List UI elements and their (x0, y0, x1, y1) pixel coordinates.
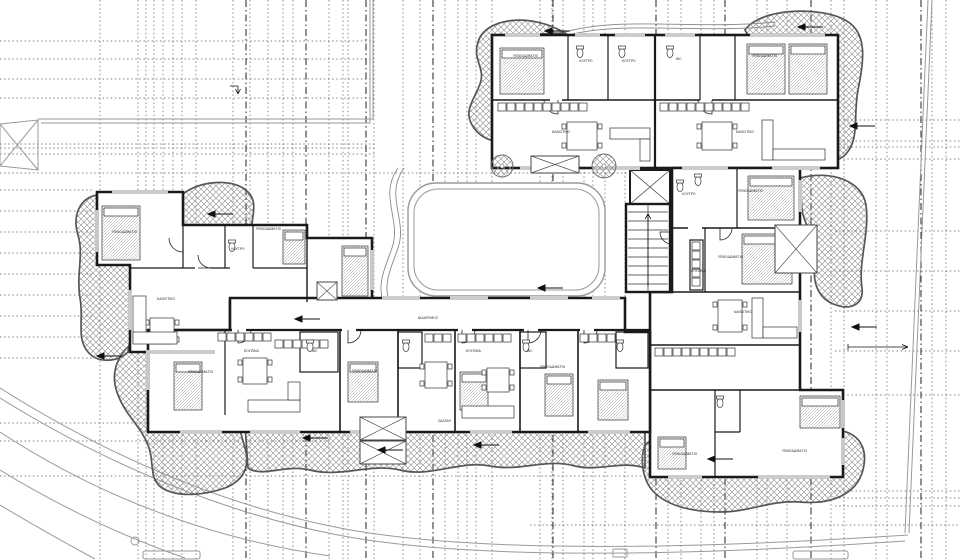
kitchen-counter (516, 103, 524, 111)
kitchen-counter (284, 340, 292, 348)
kitchen-counter (700, 348, 708, 356)
kitchen-counter (714, 103, 722, 111)
chair (598, 143, 602, 148)
floor-plan-canvas: ΥΠΝΟΔΩΜΑΤΙΟΥΠΝΟΔΩΜΑΤΙΟΥΠΝΟΔΩΜΑΤΙΟΥΠΝΟΔΩΜ… (0, 0, 960, 560)
room-label: ΚΟΥΖΙΝΑ (691, 269, 707, 273)
chair (562, 124, 566, 129)
toilet-tank (229, 240, 236, 243)
kitchen-counter (507, 103, 515, 111)
room-label: WC (527, 349, 533, 353)
room-label: ΚΟΥΖΙΝΑ (244, 349, 260, 353)
site-boundary-right-inner (905, 0, 928, 533)
kitchen-counter (709, 348, 717, 356)
chair (743, 325, 747, 330)
chair (697, 124, 701, 129)
kitchen-counter (570, 103, 578, 111)
chair (238, 377, 242, 382)
kitchen-counter (732, 103, 740, 111)
kitchen-counter (425, 334, 433, 342)
tree-trunk (500, 164, 504, 168)
chair (510, 385, 514, 390)
chair (562, 143, 566, 148)
toilet-tank (403, 340, 410, 343)
chair (482, 370, 486, 375)
room-label: ΥΠΝΟΔΩΜΑΤΙΟ (513, 54, 539, 58)
kitchen-counter (552, 103, 560, 111)
kitchen-counter (660, 103, 668, 111)
chair (697, 143, 701, 148)
kitchen-counter (607, 334, 615, 342)
room-label: ΚΑΘΙΣΤΙΚΟ (157, 297, 176, 301)
room-label: ΚΑΘΙΣΤΙΚΟ (734, 310, 753, 314)
toilet-tank (523, 340, 530, 343)
sofa (133, 332, 177, 344)
sofa (610, 128, 650, 139)
kitchen-counter (494, 334, 502, 342)
pool (408, 183, 605, 296)
sofa (752, 298, 763, 338)
dining-table (487, 368, 509, 392)
kitchen-counter (692, 278, 700, 286)
kitchen-counter (579, 103, 587, 111)
kitchen-counter (692, 260, 700, 268)
chair (448, 381, 452, 386)
kitchen-counter (293, 340, 301, 348)
dining-table (243, 358, 267, 384)
bed-pillow (791, 46, 825, 54)
room-label: ΥΠΝΟΔΩΜΑΤΙΟ (256, 227, 282, 231)
kitchen-counter (275, 340, 283, 348)
kitchen-counter (561, 103, 569, 111)
kitchen-counter (443, 334, 451, 342)
dim-top (230, 86, 241, 94)
toilet-tank (667, 46, 674, 49)
chair (268, 377, 272, 382)
room-label: ΣΑΛΟΝΙ (438, 419, 451, 423)
kitchen-counter (705, 103, 713, 111)
floor-plan-sheet: ΥΠΝΟΔΩΜΑΤΙΟΥΠΝΟΔΩΜΑΤΙΟΥΠΝΟΔΩΜΑΤΙΟΥΠΝΟΔΩΜ… (0, 0, 960, 560)
chair (713, 325, 717, 330)
chair (733, 124, 737, 129)
room-label: WC (676, 57, 682, 61)
kitchen-counter (458, 334, 466, 342)
garden-path-2 (387, 168, 404, 298)
kitchen-counter (236, 333, 244, 341)
parking-space-3 (793, 551, 848, 559)
room-label: ΔΙΑΔΡΟΜΟΣ (418, 316, 438, 320)
room-label: ΛΟΥΤΡΟ (622, 59, 636, 63)
toilet-tank (617, 340, 624, 343)
stair-core (626, 170, 670, 292)
toilet-tank (695, 174, 702, 177)
chair (175, 320, 179, 325)
kitchen-counter (503, 334, 511, 342)
bed-pillow (750, 178, 792, 186)
room-label: ΥΠΝΟΔΩΜΑΤΙΟ (718, 255, 744, 259)
bed-pillow (344, 248, 366, 256)
kitchen-counter (692, 242, 700, 250)
entrance-arrow-icon (850, 123, 875, 129)
sofa (762, 120, 773, 160)
pool-outer (408, 183, 605, 296)
sofa (288, 382, 300, 400)
bed-pillow (600, 382, 626, 390)
terrace-west-top (183, 182, 254, 226)
toilet (617, 343, 623, 352)
room-label: ΥΠΝΟΔΩΜΑΤΙΟ (540, 365, 566, 369)
kitchen-counter (669, 103, 677, 111)
toilet-tank (717, 396, 724, 399)
room-label: ΥΠΝΟΔΩΜΑΤΙΟ (782, 449, 808, 453)
sofa (773, 149, 825, 160)
sofa (640, 139, 650, 161)
chair (238, 360, 242, 365)
kitchen-counter (245, 333, 253, 341)
kitchen-counter (691, 348, 699, 356)
toilet (717, 399, 723, 408)
site-circle-marker (131, 537, 139, 545)
kitchen-counter (673, 348, 681, 356)
kitchen-counter (543, 103, 551, 111)
toilet-tank (619, 46, 626, 49)
toilet (677, 183, 683, 192)
kitchen-counter (682, 348, 690, 356)
toilet (403, 343, 409, 352)
road-entry-marker (0, 120, 38, 170)
site-boundary-top-left (38, 0, 373, 119)
toilet (577, 49, 583, 58)
contour-arc-3 (0, 505, 95, 559)
dining-table (567, 122, 597, 150)
kitchen-counter (218, 333, 226, 341)
toilet (619, 49, 625, 58)
kitchen-counter (727, 348, 735, 356)
chair (482, 385, 486, 390)
parking-space-1 (143, 551, 200, 559)
bed-pillow (802, 398, 838, 406)
kitchen-counter (254, 333, 262, 341)
kitchen-counter (723, 103, 731, 111)
tree-trunk (602, 164, 606, 168)
kitchen-counter (598, 334, 606, 342)
room-label: ΛΟΥΤΡΟ (579, 59, 593, 63)
chair (448, 364, 452, 369)
kitchen-counter (696, 103, 704, 111)
kitchen-counter (525, 103, 533, 111)
kitchen-counter (664, 348, 672, 356)
chair (268, 360, 272, 365)
kitchen-counter (485, 334, 493, 342)
kitchen-counter (678, 103, 686, 111)
kitchen-counter (718, 348, 726, 356)
chair (733, 143, 737, 148)
dining-table (718, 300, 742, 332)
room-label: WC (312, 349, 318, 353)
room-label: ΚΑΘΙΣΤΙΚΟ (736, 130, 755, 134)
chair (420, 381, 424, 386)
site-boundary-right (909, 0, 932, 533)
kitchen-counter (687, 103, 695, 111)
kitchen-counter (263, 333, 271, 341)
entrance-arrow-icon (852, 324, 877, 330)
sofa (248, 400, 300, 412)
bed-pillow (547, 376, 571, 384)
room-label: ΚΑΘΙΣΤΙΚΟ (552, 130, 571, 134)
sofa (763, 327, 797, 338)
site-boundary-top-left-inner (41, 0, 370, 123)
roof-wave-1 (565, 22, 775, 32)
room-label: ΥΠΝΟΔΩΜΑΤΙΟ (188, 370, 214, 374)
chair (713, 302, 717, 307)
kitchen-counter (476, 334, 484, 342)
kitchen-counter (589, 334, 597, 342)
kitchen-counter (498, 103, 506, 111)
chair (420, 364, 424, 369)
chair (743, 302, 747, 307)
dim-right (848, 344, 908, 350)
bed-pillow (104, 208, 138, 216)
kitchen-counter (534, 103, 542, 111)
garden-path-1 (381, 168, 398, 298)
room-label: ΥΠΝΟΔΩΜΑΤΙΟ (752, 54, 778, 58)
bed-pillow (285, 232, 303, 240)
kitchen-counter (741, 103, 749, 111)
toilet-tank (307, 340, 314, 343)
kitchen-counter (467, 334, 475, 342)
bed-pillow (660, 439, 684, 447)
kitchen-counter (434, 334, 442, 342)
chair (598, 124, 602, 129)
toilet (695, 177, 701, 186)
bed-pillow (749, 46, 783, 54)
room-label: ΥΠΝΟΔΩΜΑΤΙΟ (112, 230, 138, 234)
kitchen-counter (655, 348, 663, 356)
room-label: ΚΟΥΖΙΝΑ (466, 349, 482, 353)
room-label: ΛΟΥΤΡΟ (682, 192, 696, 196)
dining-table (425, 362, 447, 388)
toilet-tank (577, 46, 584, 49)
kitchen-counter (227, 333, 235, 341)
room-label: ΛΟΥΤΡΟ (231, 247, 245, 251)
dining-table (702, 122, 732, 150)
room-label: ΥΠΝΟΔΩΜΑΤΙΟ (352, 369, 378, 373)
toilet (667, 49, 673, 58)
room-label: ΥΠΝΟΔΩΜΑΤΙΟ (738, 189, 764, 193)
kitchen-counter (580, 334, 588, 342)
kitchen-counter (320, 340, 328, 348)
kitchen-counter (692, 251, 700, 259)
chair (510, 370, 514, 375)
sofa (462, 406, 514, 418)
toilet-tank (677, 180, 684, 183)
room-label: ΥΠΝΟΔΩΜΑΤΙΟ (672, 452, 698, 456)
